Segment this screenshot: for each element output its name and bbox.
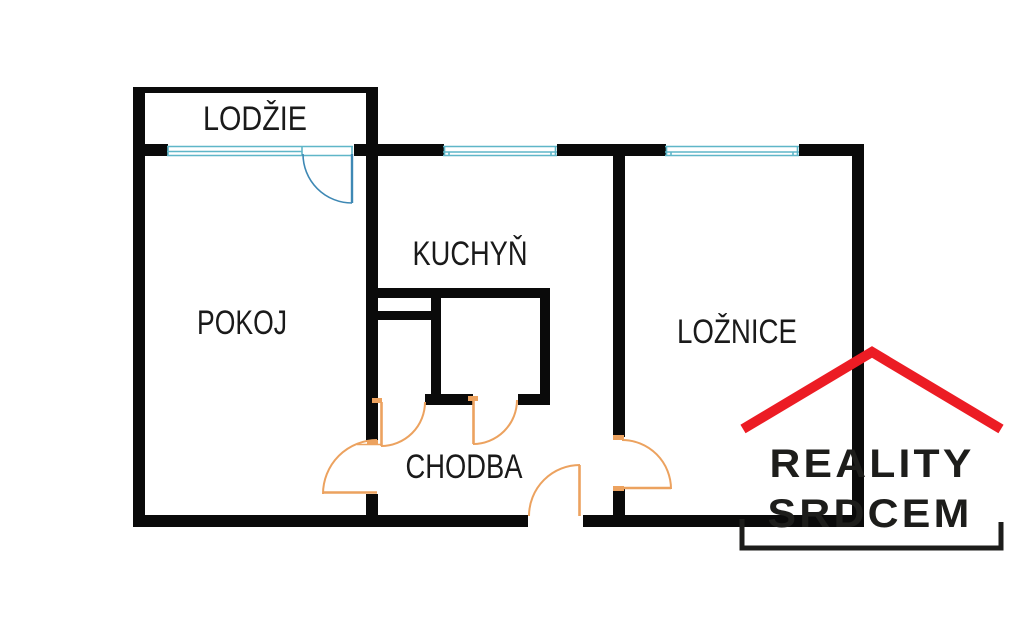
core-left-wall — [431, 288, 441, 403]
pokoj-kuchyn-wall — [366, 87, 378, 442]
entrance-door — [529, 465, 580, 516]
bottom-wall-seg-1 — [133, 515, 528, 527]
room-label-loznice: LOŽNICE — [677, 313, 797, 351]
logo-text-line1: REALITY — [770, 442, 975, 486]
bedroom-door-arc — [622, 440, 671, 489]
balcony-door-arc — [303, 154, 352, 203]
logo: REALITY SRDCEM — [742, 352, 1001, 548]
top-wall-seg-3 — [557, 144, 666, 156]
logo-roof-icon — [743, 352, 1001, 429]
kitchen-door-arc — [381, 402, 425, 446]
floorplan-page: LODŽIE POKOJ KUCHYŇ LOŽNICE CHODBA REALI… — [0, 0, 1024, 621]
loggia-top-wall — [133, 87, 378, 93]
balcony-door — [303, 154, 352, 203]
bedroom-door — [613, 435, 671, 491]
entrance-door-arc — [529, 465, 580, 516]
core-bottom-left-wall — [425, 394, 473, 405]
logo-text-line2: SRDCEM — [768, 492, 973, 536]
core-niche-wall — [378, 311, 431, 320]
core-bottom-right-wall — [518, 394, 550, 405]
bedroom-door-lower-nub — [613, 488, 625, 517]
pokoj-door-arc — [323, 440, 377, 494]
loggia-window — [167, 146, 353, 156]
top-wall-seg-1 — [133, 144, 168, 156]
core-top-wall — [378, 288, 550, 298]
room-label-pokoj: POKOJ — [197, 304, 287, 342]
bedroom-wall — [613, 144, 625, 437]
room-label-chodba: CHODBA — [406, 448, 523, 486]
pokoj-door-lower-nub — [366, 494, 378, 517]
room-label-kuchyn: KUCHYŇ — [413, 235, 528, 273]
floorplan-canvas: LODŽIE POKOJ KUCHYŇ LOŽNICE CHODBA REALI… — [0, 0, 1024, 621]
core-right-wall — [540, 288, 550, 405]
bathroom-door-arc — [473, 400, 517, 444]
bathroom-door — [468, 396, 517, 444]
kitchen-window — [443, 146, 557, 156]
room-label-lodzie: LODŽIE — [203, 100, 307, 138]
pokoj-door — [323, 440, 378, 494]
bedroom-window — [665, 146, 799, 156]
